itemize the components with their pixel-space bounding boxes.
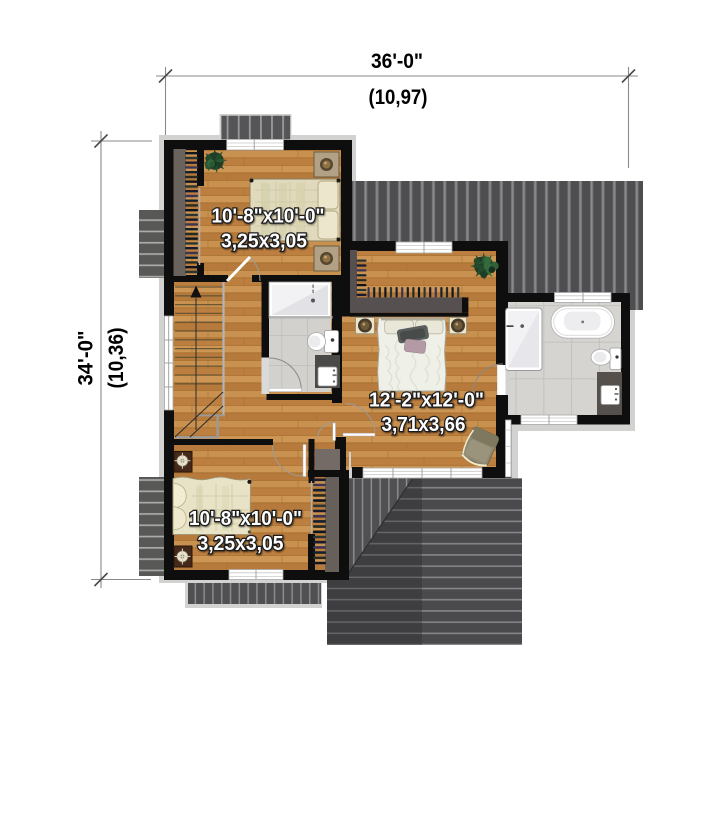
svg-text:(10,97): (10,97) [369,86,428,109]
svg-text:34'-0": 34'-0" [75,331,98,386]
svg-text:(10,36): (10,36) [105,328,128,389]
svg-text:3,25x3,05: 3,25x3,05 [198,532,284,555]
svg-text:3,71x3,66: 3,71x3,66 [382,413,466,436]
svg-text:10'-8"x10'-0": 10'-8"x10'-0" [189,507,302,530]
svg-text:3,25x3,05: 3,25x3,05 [221,229,307,252]
svg-text:36'-0": 36'-0" [371,50,423,73]
svg-text:10'-8"x10'-0": 10'-8"x10'-0" [212,205,325,228]
svg-text:12'-2"x12'-0": 12'-2"x12'-0" [369,389,484,412]
